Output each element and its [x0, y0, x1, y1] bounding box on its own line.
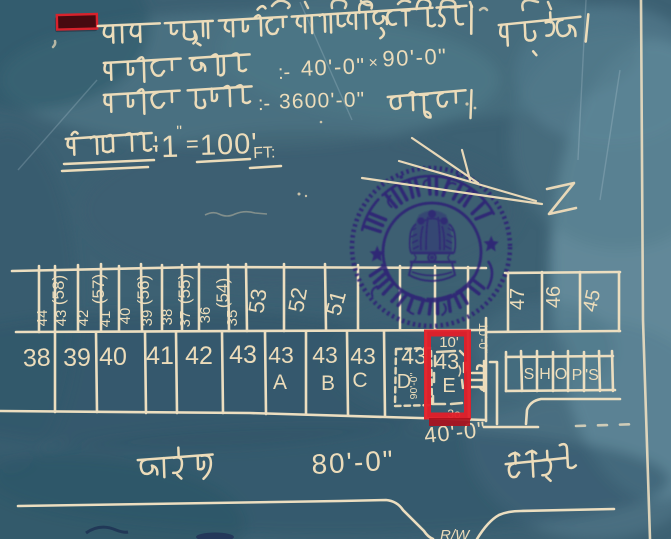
- svg-text::-: :-: [277, 61, 290, 84]
- svg-text:10': 10': [439, 334, 459, 351]
- svg-text:35: 35: [224, 310, 241, 327]
- svg-text:41: 41: [97, 311, 114, 328]
- svg-text:=: =: [185, 131, 199, 156]
- svg-text:52: 52: [283, 285, 312, 313]
- svg-text:36: 36: [197, 307, 214, 324]
- svg-text:41: 41: [146, 342, 174, 370]
- svg-text:80'-0": 80'-0": [311, 445, 396, 480]
- svg-text:C: C: [352, 369, 367, 392]
- svg-text:39: 39: [139, 310, 156, 327]
- svg-text:R/W: R/W: [440, 527, 471, 539]
- svg-text:37: 37: [177, 311, 194, 328]
- svg-text:10'-0": 10'-0": [476, 323, 490, 354]
- svg-text:38: 38: [22, 344, 51, 373]
- svg-text:B: B: [321, 372, 335, 395]
- svg-text:42: 42: [75, 310, 92, 327]
- svg-text:38: 38: [159, 309, 176, 326]
- svg-text:(57): (57): [89, 274, 108, 304]
- svg-text:90'-0": 90'-0": [408, 372, 420, 399]
- svg-text:40: 40: [99, 343, 127, 371]
- svg-text:(56): (56): [134, 275, 153, 305]
- svg-text:E: E: [442, 375, 455, 397]
- svg-text:43: 43: [229, 341, 257, 369]
- svg-text:40: 40: [117, 308, 134, 325]
- svg-text:P: P: [572, 367, 583, 384]
- svg-text::-: :-: [258, 93, 271, 115]
- svg-text:39: 39: [63, 344, 91, 372]
- svg-text:43: 43: [268, 342, 294, 368]
- svg-text:(58): (58): [49, 275, 68, 305]
- svg-text:90'-0": 90'-0": [382, 44, 448, 72]
- svg-text:'S: 'S: [585, 367, 599, 384]
- svg-text:(55): (55): [175, 274, 194, 304]
- svg-text:×: ×: [368, 55, 378, 72]
- svg-text:3600'-0": 3600'-0": [279, 88, 366, 113]
- svg-text:O: O: [555, 366, 567, 383]
- svg-text:43: 43: [401, 343, 427, 369]
- svg-text:H: H: [539, 366, 551, 383]
- svg-text:-: -: [152, 134, 159, 156]
- svg-text:45: 45: [579, 288, 605, 314]
- svg-text:40'-0": 40'-0": [300, 53, 366, 81]
- svg-text:A: A: [273, 371, 287, 394]
- svg-text:53: 53: [243, 287, 271, 315]
- svg-text:44: 44: [34, 310, 51, 327]
- svg-text:43: 43: [53, 310, 70, 327]
- svg-text:": ": [176, 124, 182, 141]
- svg-text:43: 43: [312, 342, 338, 368]
- svg-text:FT:: FT:: [253, 144, 276, 162]
- svg-text:(54): (54): [213, 278, 232, 308]
- svg-text:S: S: [524, 366, 535, 383]
- svg-text:47: 47: [507, 288, 529, 310]
- svg-text:100': 100': [199, 128, 258, 162]
- svg-text:42: 42: [185, 342, 213, 370]
- svg-text:46: 46: [543, 286, 565, 308]
- svg-text:43: 43: [350, 343, 376, 369]
